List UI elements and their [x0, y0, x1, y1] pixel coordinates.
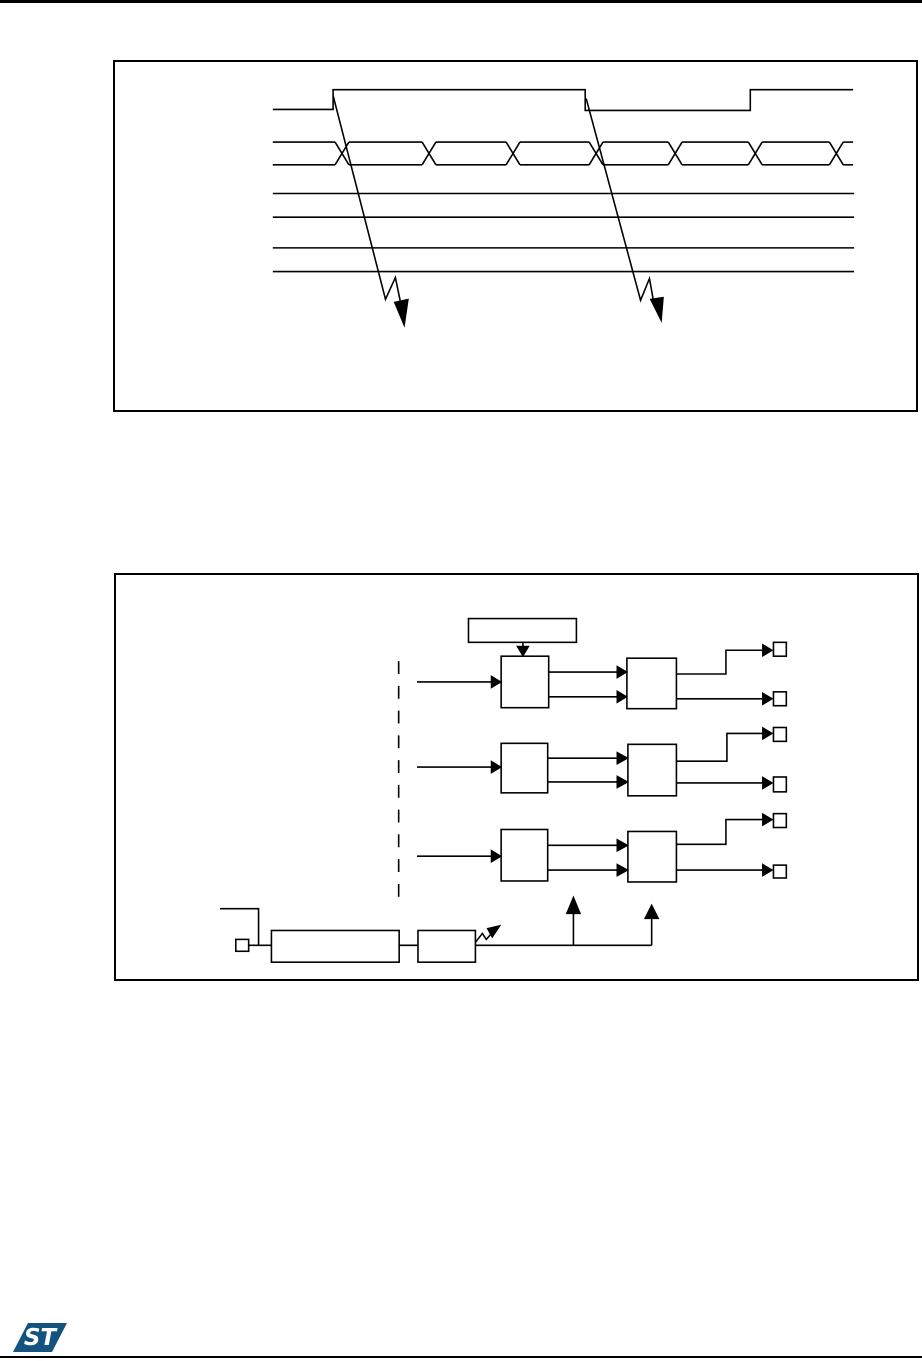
- output-pad: [773, 777, 786, 792]
- timing-diagram-figure: [113, 60, 918, 412]
- prescaler-block: [271, 930, 399, 962]
- diagram-line: [491, 761, 501, 773]
- stage3-block-b: [628, 831, 677, 882]
- enable-signal-waveform: [273, 90, 853, 111]
- diagram-line: [617, 691, 627, 703]
- event-arrow-left: [333, 96, 401, 307]
- diagram-line: [676, 733, 763, 761]
- diagram-line: [491, 850, 501, 862]
- diagram-line: [617, 864, 628, 876]
- down-arrowhead: [517, 646, 529, 656]
- diagram-line: [763, 727, 773, 739]
- stage3-block-a: [501, 829, 548, 880]
- diagram-line: [763, 693, 773, 705]
- up-arrowhead: [567, 897, 581, 914]
- event-arrow-right: [586, 99, 654, 307]
- diagram-line: [763, 644, 773, 656]
- page-bottom-rule: [0, 1356, 922, 1358]
- st-logo: ST: [13, 1322, 67, 1353]
- stage1-block-a: [501, 656, 549, 707]
- diagram-line: [617, 776, 628, 788]
- output-pad: [773, 642, 786, 656]
- trim-zigzag: [475, 932, 492, 942]
- output-pad: [773, 814, 786, 828]
- block-diagram-figure: [114, 573, 919, 981]
- up-arrowhead: [645, 905, 659, 919]
- stage2-block-b: [628, 744, 677, 795]
- diagram-line: [491, 676, 501, 688]
- diagram-line: [676, 650, 763, 674]
- event-arrowhead-left: [394, 299, 408, 326]
- diagram-line: [617, 752, 628, 764]
- register-block: [468, 619, 576, 643]
- page-top-rule: [0, 0, 922, 3]
- input-pad: [236, 939, 249, 951]
- stage1-block-b: [627, 658, 677, 709]
- output-pad: [773, 692, 786, 706]
- diagram-line: [763, 814, 773, 826]
- diagram-line: [763, 864, 773, 876]
- diagram-line: [617, 839, 628, 851]
- output-pad: [773, 865, 786, 878]
- event-arrowhead-right: [650, 297, 663, 321]
- divider-block: [418, 930, 475, 962]
- st-logo-letters: ST: [24, 1325, 59, 1351]
- timing-diagram-canvas: [115, 62, 916, 410]
- diagram-line: [676, 820, 763, 845]
- document-page: ST: [0, 0, 922, 1361]
- diagram-line: [763, 777, 773, 789]
- diagram-line: [617, 666, 627, 678]
- output-pad: [773, 727, 786, 741]
- stage2-block-a: [501, 743, 548, 793]
- block-diagram-canvas: [116, 575, 917, 979]
